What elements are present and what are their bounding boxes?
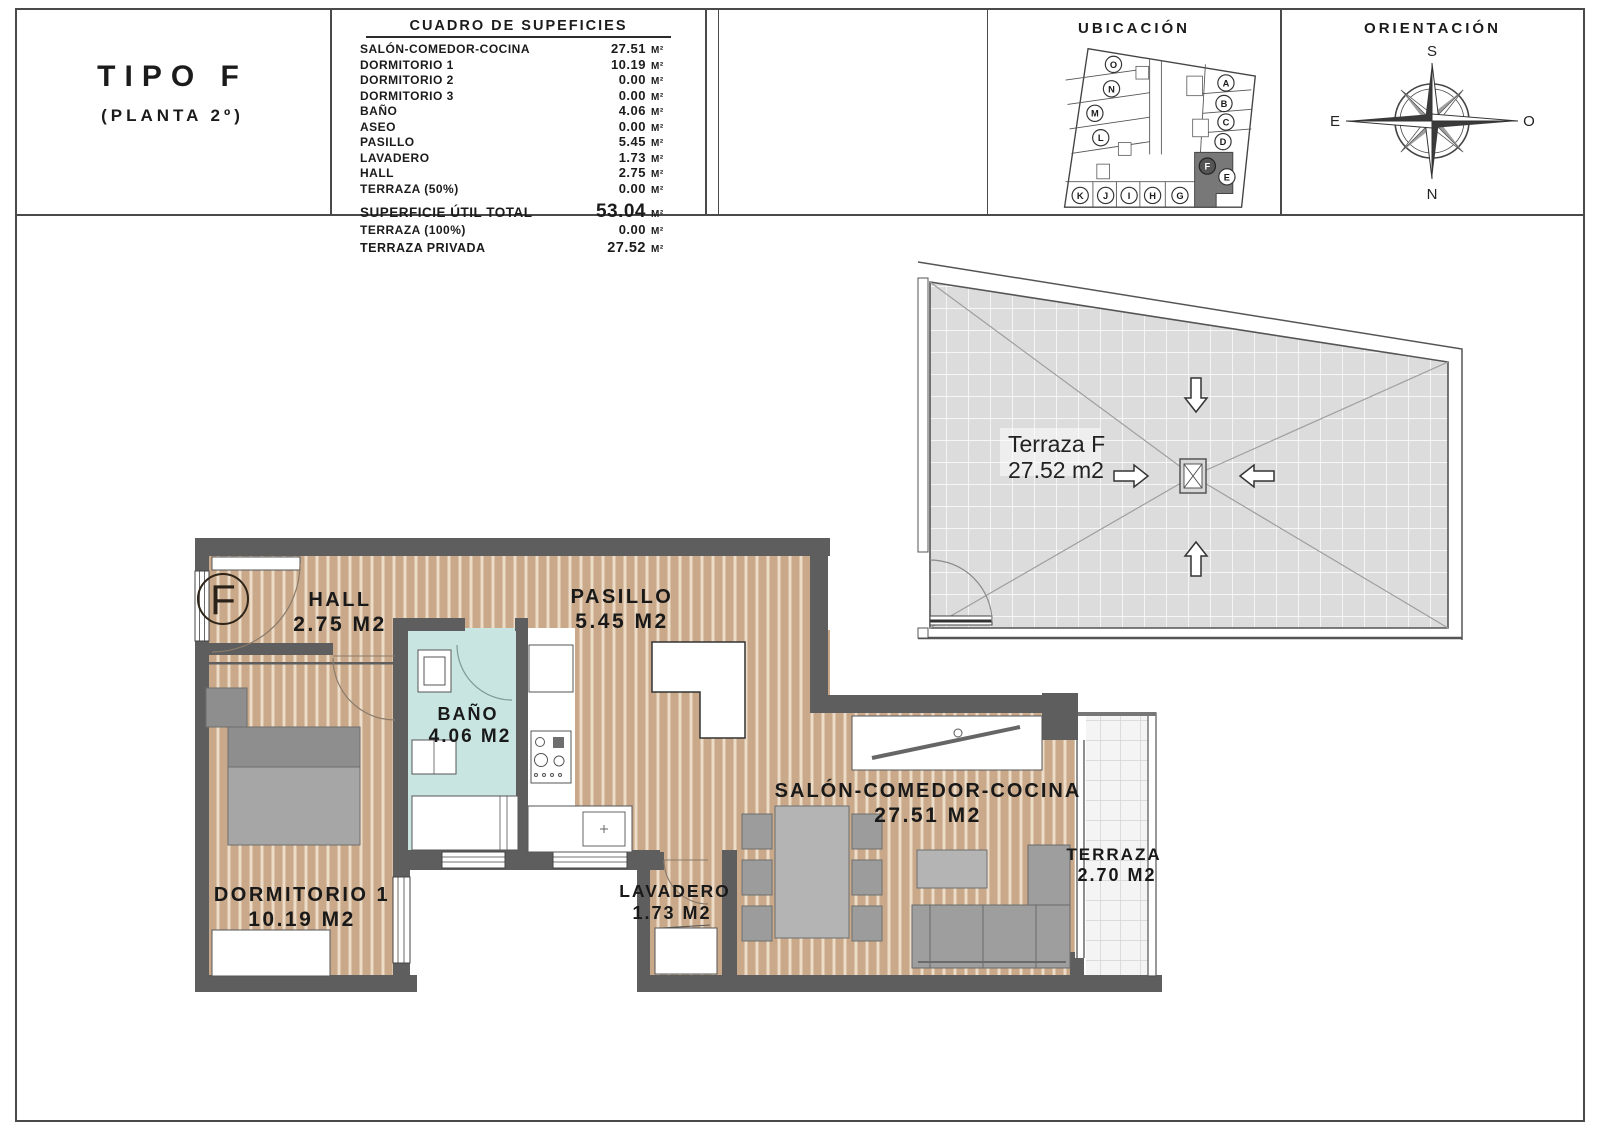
table-total-row: SUPERFICIE ÚTIL TOTAL53.04M² (360, 204, 677, 223)
svg-text:L: L (1098, 133, 1104, 143)
svg-text:E: E (1224, 172, 1230, 182)
svg-text:G: G (1176, 191, 1183, 201)
ubicacion-title: UBICACIÓN (988, 20, 1280, 37)
table-row: TERRAZA PRIVADA27.52M² (360, 242, 677, 257)
table-row: TERRAZA (50%)0.00M² (360, 182, 677, 198)
table-row: DORMITORIO 110.19M² (360, 58, 677, 74)
orientacion-panel: ORIENTACIÓN (1280, 8, 1585, 215)
compass-label-east: E (1330, 113, 1340, 130)
svg-text:J: J (1103, 191, 1108, 201)
table-row: BAÑO4.06M² (360, 104, 677, 120)
svg-text:H: H (1149, 191, 1156, 201)
table-row: DORMITORIO 30.00M² (360, 89, 677, 105)
compass-label-south: S (1427, 43, 1437, 60)
surface-table-title: CUADRO DE SUPEFICIES (366, 18, 671, 38)
header-divider-2 (705, 8, 707, 216)
compass-label-west: O (1523, 113, 1535, 130)
table-row: SALÓN-COMEDOR-COCINA27.51M² (360, 42, 677, 58)
site-map: O N M L A B C D E F K J I H G (988, 37, 1280, 215)
table-row: ASEO0.00M² (360, 120, 677, 136)
highlighted-unit-letter: F (1199, 158, 1215, 174)
compass-rose-icon: S N E O (1280, 37, 1585, 209)
table-row: HALL2.75M² (360, 166, 677, 182)
orientacion-title: ORIENTACIÓN (1280, 20, 1585, 37)
svg-text:O: O (1110, 60, 1117, 70)
svg-text:K: K (1077, 191, 1084, 201)
table-row: LAVADERO1.73M² (360, 151, 677, 167)
svg-text:N: N (1108, 84, 1115, 94)
svg-text:C: C (1223, 118, 1230, 128)
compass-main-points (1346, 63, 1518, 179)
svg-text:B: B (1221, 99, 1228, 109)
table-row: PASILLO5.45M² (360, 135, 677, 151)
ubicacion-panel: UBICACIÓN (988, 8, 1280, 215)
svg-text:D: D (1220, 137, 1227, 147)
type-subtitle: (PLANTA 2º) (15, 106, 330, 126)
table-row: TERRAZA (100%)0.00M² (360, 223, 677, 239)
svg-text:I: I (1128, 191, 1131, 201)
svg-text:A: A (1223, 78, 1230, 88)
svg-text:F: F (1205, 162, 1211, 172)
type-title: TIPO F (15, 60, 330, 94)
compass-label-north: N (1427, 186, 1438, 203)
table-row: DORMITORIO 20.00M² (360, 73, 677, 89)
surface-table: CUADRO DE SUPEFICIES SALÓN-COMEDOR-COCIN… (330, 8, 705, 215)
plan-sheet: Terraza F 27.52 m2 (0, 0, 1600, 1131)
type-title-block: TIPO F (PLANTA 2º) (15, 8, 330, 215)
svg-text:M: M (1091, 109, 1099, 119)
empty-panel (718, 8, 988, 215)
